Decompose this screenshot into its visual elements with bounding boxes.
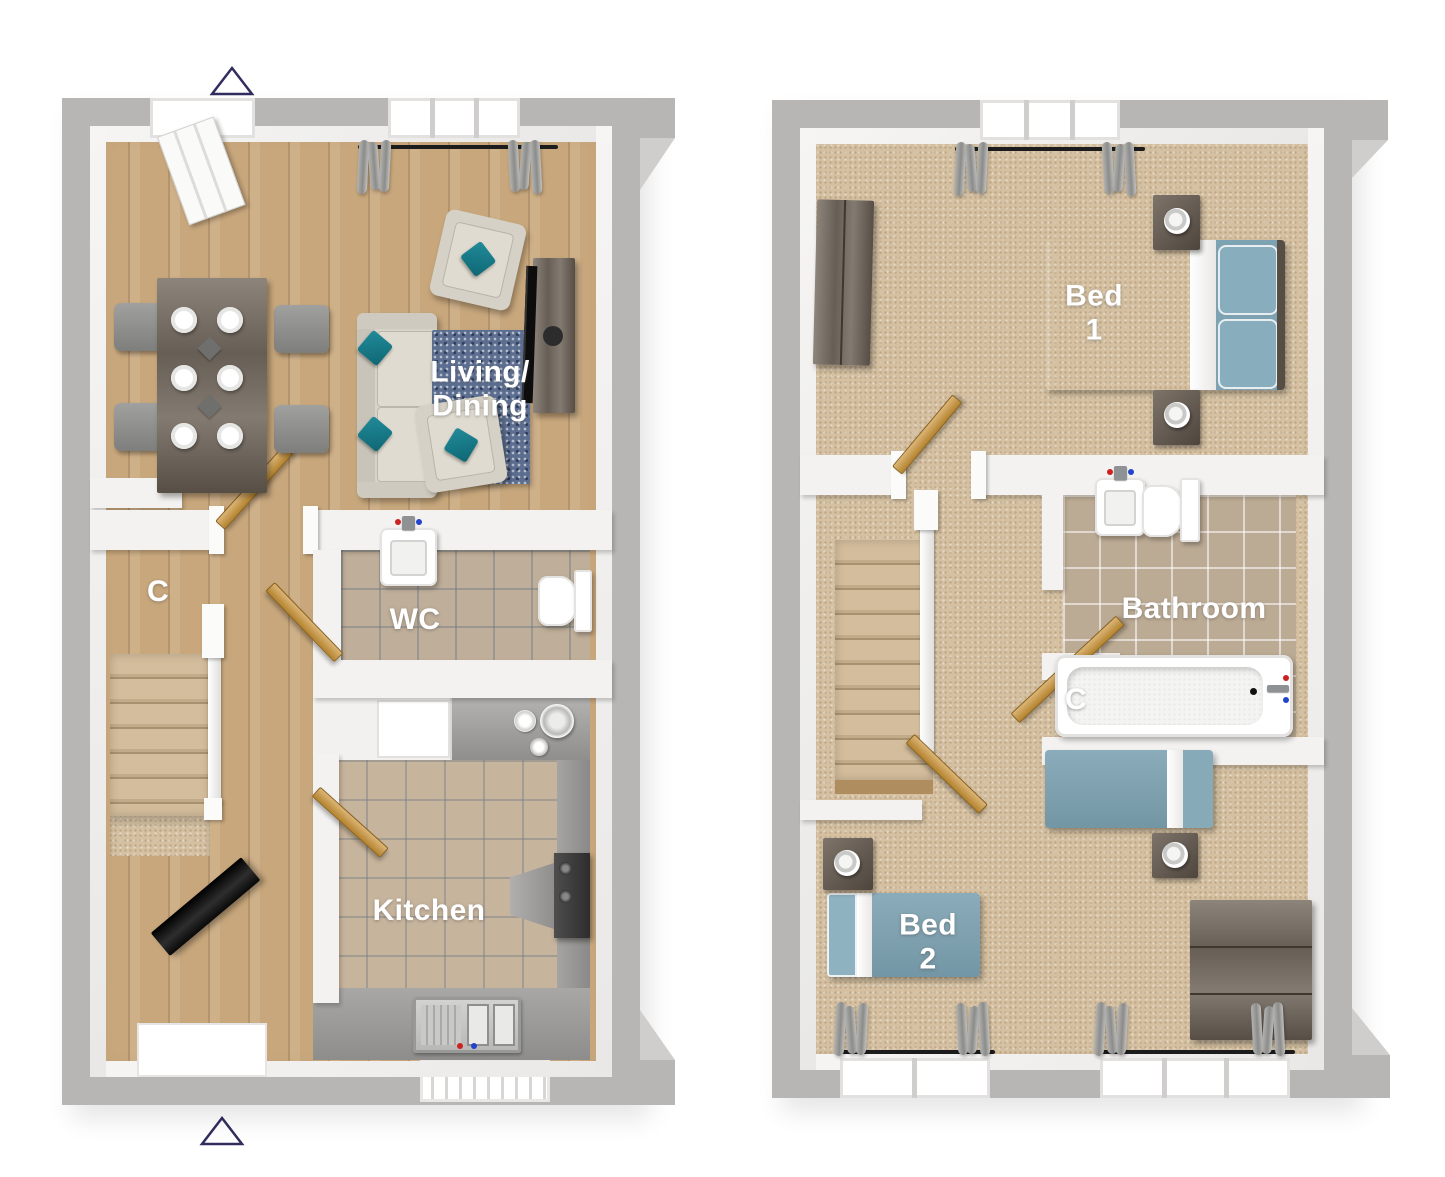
gf-wall-bevel-top-right: [640, 138, 675, 190]
window-mullion: [474, 98, 479, 138]
plate: [217, 423, 243, 449]
dining-chair: [274, 405, 329, 453]
staircase: [110, 654, 210, 816]
wardrobe-seam: [840, 200, 846, 365]
ff-wall-bevel-bottom-right: [1352, 1008, 1390, 1055]
living-wc-wall: [307, 510, 612, 550]
room-label-bed2-line2: 2: [899, 942, 957, 976]
lamp: [1162, 842, 1188, 868]
ff-wall-bevel-top-right: [1352, 140, 1388, 178]
toilet-cistern: [574, 570, 592, 632]
stair-newel-post: [914, 490, 938, 530]
kitchen-sink: [413, 997, 521, 1053]
bed2-window-right: [1100, 1058, 1290, 1098]
room-label-kitchen: Kitchen: [373, 894, 486, 928]
dining-table: [157, 278, 267, 493]
drawer-seam: [1190, 993, 1312, 995]
hot-tap-dot: [457, 1043, 463, 1049]
window-mullion: [1070, 100, 1075, 140]
wall-post: [971, 451, 986, 499]
window-mullion: [1224, 1058, 1229, 1098]
bathroom-sink-basin: [1104, 490, 1136, 526]
bathtub: [1055, 655, 1293, 737]
plate: [171, 307, 197, 333]
bed-sheet-fold: [857, 893, 872, 977]
wall-post: [303, 506, 318, 554]
entrance-marker-bottom-icon: [198, 1114, 246, 1148]
stair-railing: [208, 654, 221, 804]
room-label-wc: WC: [390, 603, 441, 637]
kettle: [540, 704, 574, 738]
room-label-bed2-line1: Bed: [899, 908, 957, 942]
wardrobe: [813, 199, 874, 365]
room-label-cupboard-ff: C: [1065, 683, 1087, 717]
cold-tap-dot: [1283, 697, 1289, 703]
bed-sheet-fold: [1167, 750, 1183, 828]
room-label-living-line1: Living/: [430, 355, 529, 389]
napkin: [197, 394, 221, 418]
stair-railing: [920, 520, 934, 752]
plate: [171, 423, 197, 449]
wc-sink: [380, 528, 437, 586]
plate: [217, 307, 243, 333]
tv-unit: [533, 258, 575, 413]
ff-outer-wall-top-extension: [1352, 100, 1388, 140]
sink-basin: [493, 1004, 515, 1046]
bed-sheet-fold: [1190, 240, 1216, 390]
gf-wall-bevel-bottom-right: [640, 1010, 675, 1060]
room-label-living-dining: Living/ Dining: [430, 355, 529, 422]
speaker-icon: [543, 326, 563, 346]
room-label-bed1: Bed 1: [1065, 279, 1123, 346]
stair-newel-post: [202, 604, 224, 658]
bath-sink-tap: [1114, 466, 1127, 480]
gf-wall-face-right: [596, 126, 612, 1077]
lamp: [1164, 402, 1190, 428]
sink-basin: [467, 1004, 489, 1046]
lamp: [834, 850, 860, 876]
room-label-bed2: Bed 2: [899, 908, 957, 975]
toilet-bowl-ff: [1142, 485, 1184, 537]
ff-outer-wall-bottom-extension: [1352, 1055, 1390, 1098]
room-label-bed1-line2: 1: [1065, 313, 1123, 347]
pot: [514, 710, 536, 732]
gf-outer-wall-bottom-extension: [640, 1060, 675, 1105]
wc-tap: [402, 516, 415, 530]
sofa-arm: [357, 313, 437, 329]
toilet-bowl: [538, 576, 578, 626]
plate: [171, 365, 197, 391]
bath-tap: [1267, 685, 1289, 692]
first-floor-plan: Bed 1 Bathroom C Bed 2: [772, 100, 1392, 1098]
window-mullion: [912, 1058, 917, 1098]
hot-tap-dot: [1283, 675, 1289, 681]
floorplan-canvas: Living/ Dining WC Kitchen C: [0, 0, 1445, 1177]
washing-machine: [377, 700, 450, 758]
toilet-cistern-ff: [1180, 478, 1200, 542]
window-mullion: [430, 98, 435, 138]
sink-drainer: [421, 1005, 461, 1045]
bathtub-well: [1067, 667, 1263, 725]
front-door-threshold: [137, 1023, 267, 1077]
hot-tap-dot: [1107, 469, 1113, 475]
headboard: [1277, 240, 1285, 390]
pot-small: [530, 738, 548, 756]
single-bed-right: [1045, 750, 1213, 828]
room-label-cupboard-gf: C: [147, 575, 169, 609]
wc-sink-basin: [390, 540, 427, 576]
drawer-seam: [1190, 946, 1312, 948]
bed-pillow: [1218, 319, 1278, 389]
bed1-landing-wall: [800, 455, 895, 495]
hob-burner: [559, 890, 572, 903]
room-label-bed1-line1: Bed: [1065, 279, 1123, 313]
bathroom-left-wall: [1042, 495, 1063, 590]
bed1-window: [980, 100, 1120, 140]
hall-living-wall: [90, 510, 213, 550]
entrance-marker-top-icon: [208, 64, 256, 98]
gf-outer-wall-top-extension: [640, 98, 675, 138]
bed-pillow: [827, 893, 857, 977]
window-mullion: [1162, 1058, 1167, 1098]
window-mullion: [1024, 100, 1029, 140]
hot-tap-dot: [395, 519, 401, 525]
napkin: [197, 336, 221, 360]
cold-tap-dot: [1128, 469, 1134, 475]
cold-tap-dot: [471, 1043, 477, 1049]
bed-pillow: [1218, 245, 1278, 315]
bed-duvet: [1045, 750, 1167, 828]
living-window: [388, 98, 520, 138]
ff-wall-face-left: [800, 128, 816, 1070]
staircase-landing: [110, 816, 210, 856]
cold-tap-dot: [416, 519, 422, 525]
bed-pillow: [1183, 750, 1213, 828]
room-label-bathroom: Bathroom: [1122, 592, 1267, 626]
bathroom-sink: [1095, 478, 1145, 536]
dining-chair: [274, 305, 329, 353]
room-label-living-line2: Dining: [430, 389, 529, 423]
hob-burner: [559, 862, 572, 875]
stair-newel-post: [204, 798, 222, 820]
gf-wall-face-left: [90, 126, 106, 1077]
plate: [217, 365, 243, 391]
stair-bottom-step: [835, 780, 933, 794]
lamp: [1164, 208, 1190, 234]
stairs-bed2-wall: [800, 800, 922, 820]
wc-kitchen-wall: [313, 660, 612, 698]
bath-drain: [1250, 688, 1257, 695]
ground-floor-plan: Living/ Dining WC Kitchen C: [62, 98, 680, 1105]
